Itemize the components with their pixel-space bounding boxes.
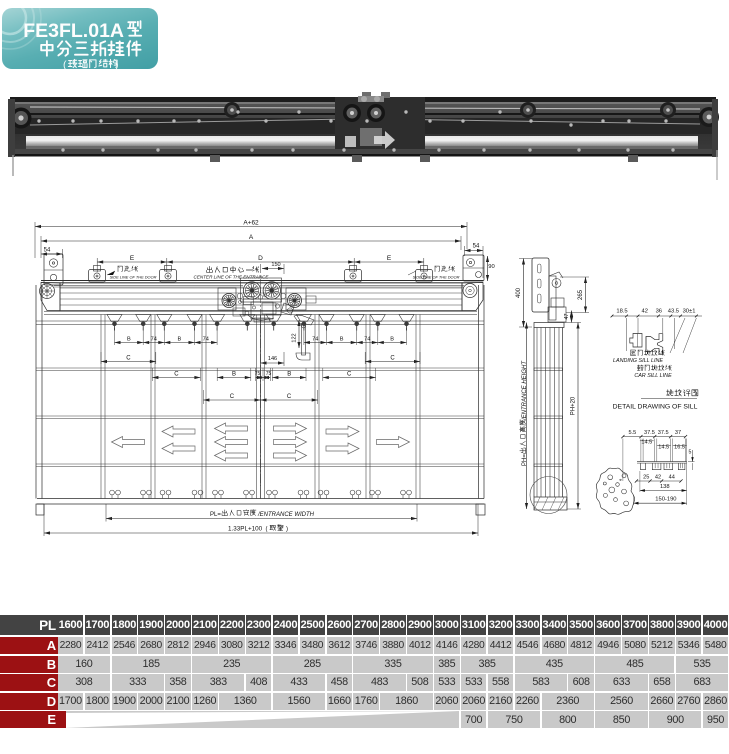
svg-text:CAR SILL LINE: CAR SILL LINE — [634, 373, 672, 379]
svg-text:47: 47 — [564, 314, 570, 320]
svg-text:36: 36 — [656, 309, 662, 315]
svg-text:LANDING SILL LINE: LANDING SILL LINE — [613, 358, 663, 364]
svg-text:14.5: 14.5 — [658, 445, 669, 451]
svg-text:74: 74 — [312, 337, 318, 343]
svg-text:37.5: 37.5 — [644, 430, 655, 436]
svg-text:90: 90 — [488, 264, 494, 270]
svg-text:74: 74 — [151, 337, 157, 343]
svg-text:(: ( — [266, 527, 268, 533]
svg-text:B: B — [178, 337, 182, 343]
svg-text:FE3FL.01A: FE3FL.01A — [23, 20, 124, 42]
svg-text:42: 42 — [641, 309, 647, 315]
svg-text:/ENTRANCE WIDTH: /ENTRANCE WIDTH — [257, 512, 315, 518]
svg-text:C: C — [390, 356, 395, 362]
svg-text:SIDE LINE OF THE DOOR: SIDE LINE OF THE DOOR — [110, 275, 157, 280]
svg-text:18.5: 18.5 — [616, 309, 627, 315]
svg-text:400: 400 — [516, 287, 522, 298]
svg-text:146: 146 — [268, 356, 277, 362]
svg-text:54: 54 — [473, 244, 480, 250]
svg-text:B: B — [287, 372, 291, 378]
svg-text:5.5: 5.5 — [629, 430, 637, 436]
svg-text:C: C — [347, 372, 352, 378]
svg-text:265: 265 — [578, 289, 584, 300]
svg-text:CENTER LINE OF THE ENTRANCE: CENTER LINE OF THE ENTRANCE — [194, 274, 270, 279]
svg-text:SIDE LINE OF THE DOOR: SIDE LINE OF THE DOOR — [413, 274, 460, 279]
svg-text:C: C — [230, 394, 235, 400]
svg-text:75: 75 — [255, 371, 261, 377]
svg-text:): ) — [286, 527, 288, 533]
svg-text:37: 37 — [675, 430, 681, 436]
svg-text:150: 150 — [271, 262, 280, 268]
svg-text:C: C — [287, 394, 292, 400]
svg-text:B: B — [390, 337, 394, 343]
svg-text:42: 42 — [655, 475, 661, 481]
svg-text:43.5: 43.5 — [668, 309, 679, 315]
svg-text:DETAIL DRAWING OF SILL: DETAIL DRAWING OF SILL — [613, 404, 698, 411]
svg-text:E: E — [130, 255, 135, 262]
svg-text:B: B — [340, 337, 344, 343]
svg-text:44: 44 — [669, 475, 675, 481]
svg-text:30±1: 30±1 — [683, 309, 696, 315]
svg-text:C: C — [174, 372, 179, 378]
svg-text:37.5: 37.5 — [658, 430, 669, 436]
svg-text:A: A — [249, 234, 254, 241]
svg-text:C: C — [126, 356, 131, 362]
svg-text:/ENTRANCE HEIGHT: /ENTRANCE HEIGHT — [522, 360, 528, 421]
svg-text:75: 75 — [266, 371, 272, 377]
svg-text:(: ( — [63, 59, 67, 69]
svg-text:5: 5 — [689, 450, 692, 456]
svg-text:B: B — [127, 337, 131, 343]
svg-text:): ) — [115, 59, 119, 69]
svg-text:PH=: PH= — [522, 454, 528, 466]
svg-text:25: 25 — [643, 475, 649, 481]
svg-text:150-190: 150-190 — [655, 497, 676, 503]
svg-text:A+62: A+62 — [243, 220, 259, 227]
svg-text:E: E — [387, 255, 392, 262]
svg-text:B: B — [232, 372, 236, 378]
svg-text:D: D — [258, 255, 263, 262]
svg-text:1.33PL+100: 1.33PL+100 — [228, 526, 263, 533]
svg-text:122: 122 — [292, 333, 298, 342]
svg-text:PH+20: PH+20 — [571, 396, 577, 415]
svg-text:74: 74 — [203, 337, 209, 343]
svg-text:138: 138 — [660, 484, 670, 490]
svg-text:54: 54 — [44, 248, 51, 254]
svg-text:74: 74 — [364, 337, 370, 343]
svg-text:PL=: PL= — [210, 512, 221, 518]
svg-text:16.5: 16.5 — [674, 445, 685, 451]
